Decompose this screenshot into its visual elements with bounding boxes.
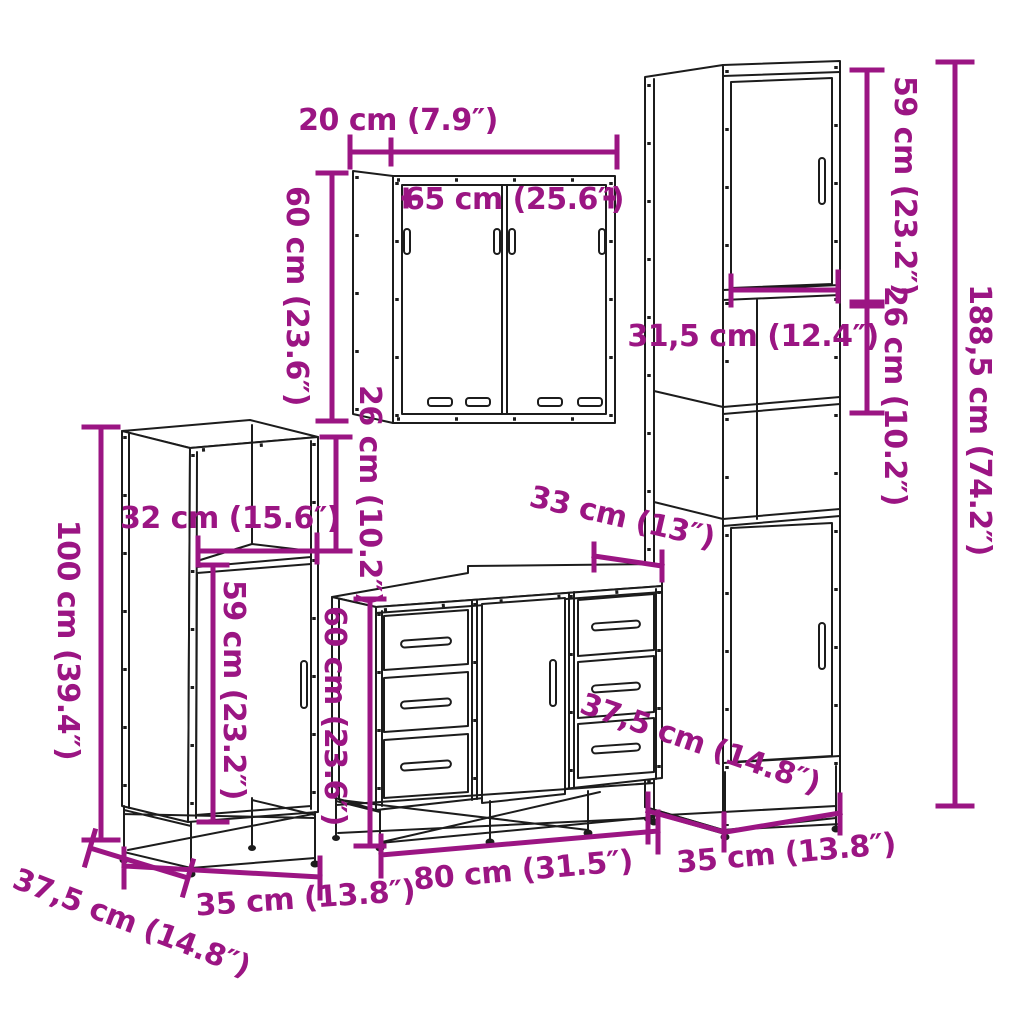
dimension-label: 188,5 cm (74.2″): [962, 284, 997, 556]
dimension-tall-upper-door-height: 59 cm (23.2″): [852, 70, 922, 302]
dimension-diagram: 20 cm (7.9″) 65 cm (25.6″) 60 cm (23.6″)…: [0, 0, 1024, 1024]
tall-lower-door-handle: [819, 623, 825, 669]
dimension-label: 31,5 cm (12.4″): [627, 319, 878, 354]
dimension-mirror-height: 60 cm (23.6″): [279, 173, 346, 421]
dimension-side-total-height: 100 cm (39.4″): [50, 427, 118, 840]
dimension-annotations: 20 cm (7.9″) 65 cm (25.6″) 60 cm (23.6″)…: [8, 62, 997, 984]
dimension-label: 35 cm (13.8″): [194, 873, 416, 923]
dimension-line: [84, 427, 118, 840]
dimension-line: [852, 70, 882, 302]
mirror-cabinet-foot-tab: [466, 398, 490, 406]
dimension-label: 20 cm (7.9″): [298, 103, 498, 138]
dimension-label: 37,5 cm (14.8″): [8, 862, 255, 985]
side-cabinet-foot: [248, 845, 256, 851]
tall-cabinet-upper-door: [731, 78, 832, 288]
mirror-cabinet-foot-tab: [538, 398, 562, 406]
dimension-label: 26 cm (10.2″): [352, 385, 387, 605]
dimension-label: 32 cm (15.6″): [120, 501, 340, 536]
diagram-canvas: 20 cm (7.9″) 65 cm (25.6″) 60 cm (23.6″)…: [0, 0, 1024, 1024]
dimension-label: 59 cm (23.2″): [216, 580, 251, 800]
dimension-label: 60 cm (23.6″): [317, 606, 352, 826]
dimension-label: 35 cm (13.8″): [675, 827, 897, 881]
mirror-door-handle: [494, 229, 500, 254]
dimension-label: 26 cm (10.2″): [877, 286, 912, 506]
mirror-cabinet-foot-tab: [578, 398, 602, 406]
side-cabinet-door-handle: [301, 661, 307, 708]
tall-cabinet-lower-door: [731, 523, 832, 762]
dimension-label: 59 cm (23.2″): [887, 76, 922, 296]
side-cabinet-side-panel: [122, 431, 190, 822]
dimension-label: 60 cm (23.6″): [279, 186, 314, 406]
vanity-door-handle: [550, 660, 556, 706]
vanity-foot: [332, 835, 340, 841]
mirror-door-handle: [599, 229, 605, 254]
tall-upper-door-handle: [819, 158, 825, 204]
dimension-tall-total-height: 188,5 cm (74.2″): [938, 62, 997, 806]
dimension-mirror-width: 65 cm (25.6″): [404, 182, 624, 217]
mirror-door-handle: [404, 229, 410, 254]
dimension-line: [350, 137, 617, 167]
dimension-label: 65 cm (25.6″): [404, 182, 624, 217]
dimension-side-width: 35 cm (13.8″): [124, 849, 416, 924]
dimension-line: [318, 173, 346, 421]
mirror-cabinet-foot-tab: [428, 398, 452, 406]
mirror-door-handle: [509, 229, 515, 254]
dimension-label: 100 cm (39.4″): [50, 520, 85, 760]
dimension-mirror-depth: 20 cm (7.9″): [298, 103, 617, 167]
